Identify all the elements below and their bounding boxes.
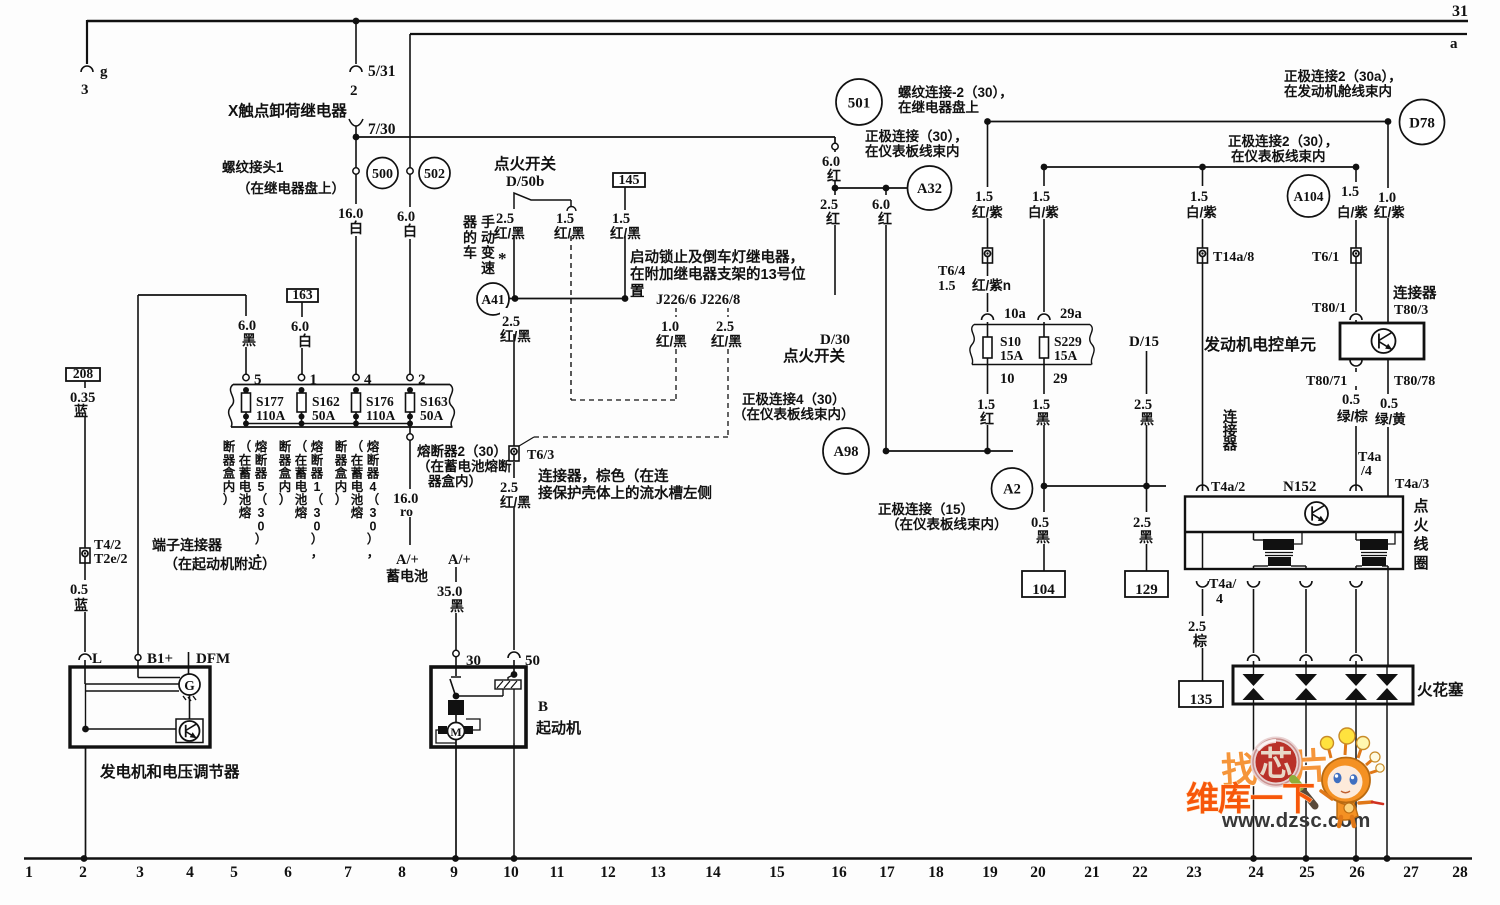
svg-text:红/黑: 红/黑 [711,333,742,349]
svg-text:4: 4 [370,480,377,494]
svg-text:正极连接（15）: 正极连接（15） [878,501,974,517]
svg-text:（在继电器盘上）: （在继电器盘上） [237,180,345,196]
svg-text:J226/8: J226/8 [700,292,740,308]
svg-text:2.5: 2.5 [502,314,520,330]
svg-text:15A: 15A [1000,348,1024,363]
svg-text:器盒内）: 器盒内） [427,473,482,489]
svg-text:（在起动机附近）: （在起动机附近） [164,556,276,572]
svg-text:（: （ [255,492,268,507]
svg-text:（: （ [367,492,380,507]
svg-text:g: g [100,64,108,80]
svg-text:红: 红 [878,211,892,227]
svg-text:（在仪表板线束内）: （在仪表板线束内） [733,406,855,422]
svg-text:T80/3: T80/3 [1394,303,1428,318]
svg-text:50A: 50A [420,408,444,423]
svg-text:8: 8 [398,864,406,881]
svg-text:T6/4: T6/4 [938,264,965,279]
svg-text:T4a: T4a [1358,450,1381,465]
svg-text:T6/1: T6/1 [1312,250,1339,265]
svg-text:5: 5 [258,480,265,494]
svg-text:（在仪表板线束内）: （在仪表板线束内） [886,516,1008,532]
svg-text:110A: 110A [366,408,396,423]
svg-text:1.5: 1.5 [612,211,630,227]
svg-text:熔: 熔 [351,505,364,520]
svg-text:5: 5 [230,864,238,881]
svg-text:在: 在 [351,452,364,467]
svg-text:速: 速 [481,260,495,276]
svg-text:0: 0 [258,519,265,533]
svg-text:26: 26 [1349,864,1365,881]
svg-text:12: 12 [600,864,616,881]
svg-text:208: 208 [73,366,94,381]
svg-text:0: 0 [370,519,377,533]
svg-text:器: 器 [1222,437,1238,454]
svg-text:黑: 黑 [450,598,464,614]
svg-text:断: 断 [223,439,236,454]
svg-text:145: 145 [619,173,640,188]
svg-text:4: 4 [1216,592,1223,607]
svg-text:T80/1: T80/1 [1312,301,1346,316]
svg-text:正极连接2（30a），: 正极连接2（30a）， [1284,68,1402,84]
svg-text:电: 电 [295,479,308,494]
svg-text:19: 19 [982,864,998,881]
svg-text:）: ） [335,492,348,507]
svg-text:熔: 熔 [295,505,308,520]
svg-text:）: ） [311,532,324,547]
svg-text:）: ） [223,492,236,507]
svg-text:（: （ [239,439,252,454]
svg-text:7/30: 7/30 [368,121,396,138]
svg-text:蓝: 蓝 [74,403,88,419]
svg-text:163: 163 [292,287,313,302]
svg-text:24: 24 [1248,864,1264,881]
svg-text:3: 3 [81,82,89,98]
svg-text:104: 104 [1032,582,1055,598]
svg-text:）: ） [367,532,380,547]
svg-text:器: 器 [310,467,324,481]
svg-text:发动机电控单元: 发动机电控单元 [1203,335,1316,354]
svg-text:断: 断 [279,439,292,454]
svg-text:熔断器2（30）: 熔断器2（30） [417,443,507,459]
svg-text:在仪表板线束内: 在仪表板线束内 [1231,148,1326,164]
svg-text:蓄: 蓄 [239,466,252,481]
svg-text:G: G [184,678,195,693]
svg-text:25: 25 [1299,864,1315,881]
svg-text:5: 5 [254,372,262,388]
svg-text:黑: 黑 [1139,529,1153,545]
svg-text:0.5: 0.5 [70,582,88,598]
svg-text:1.0: 1.0 [1378,190,1396,206]
svg-text:白: 白 [403,223,417,239]
svg-text:蓄: 蓄 [351,466,364,481]
svg-text:T14a/8: T14a/8 [1213,250,1254,265]
svg-text:1.5: 1.5 [1190,189,1208,205]
svg-text:盒: 盒 [334,466,348,481]
svg-text:连接器: 连接器 [1393,284,1437,302]
svg-text:DFM: DFM [196,651,230,667]
svg-text:2.5: 2.5 [496,211,514,227]
svg-text:28: 28 [1452,864,1468,881]
svg-text:红/紫: 红/紫 [1374,204,1405,220]
svg-text:白/紫: 白/紫 [1337,204,1368,220]
svg-text:动: 动 [481,229,495,245]
svg-text:1: 1 [310,372,318,388]
svg-text:红/紫n: 红/紫n [972,277,1011,293]
svg-text:红/黑: 红/黑 [500,328,531,344]
svg-text:（: （ [351,439,364,454]
svg-text:白: 白 [349,220,363,236]
svg-text:起动机: 起动机 [535,719,581,737]
svg-text:正极连接（30），: 正极连接（30）， [865,128,968,144]
svg-text:S163: S163 [420,394,448,409]
svg-text:（在蓄电池熔断: （在蓄电池熔断 [417,458,512,474]
svg-text:器: 器 [254,467,268,481]
svg-text:绿/黄: 绿/黄 [1375,411,1406,427]
svg-text:20: 20 [1030,864,1046,881]
svg-text:火花塞: 火花塞 [1417,680,1464,699]
svg-text:110A: 110A [256,408,286,423]
svg-text:启动锁止及倒车灯继电器，: 启动锁止及倒车灯继电器， [630,248,804,266]
svg-text:50A: 50A [312,408,336,423]
svg-text:2: 2 [79,864,87,881]
svg-text:在: 在 [239,452,252,467]
svg-text:点火开关: 点火开关 [494,154,557,173]
svg-text:池: 池 [239,492,252,507]
svg-text:线: 线 [1413,535,1428,553]
svg-text:0.5: 0.5 [1380,396,1398,412]
svg-text:3: 3 [370,506,377,520]
svg-text:2: 2 [418,372,426,388]
svg-text:断: 断 [311,452,324,467]
svg-text:白: 白 [298,333,312,349]
svg-text:A2: A2 [1003,482,1021,498]
svg-text:T4a/3: T4a/3 [1395,477,1429,492]
svg-text:熔: 熔 [239,505,252,520]
svg-text:器: 器 [462,214,478,230]
svg-text:发电机和电压调节器: 发电机和电压调节器 [99,762,240,781]
svg-text:L: L [92,651,102,667]
svg-text:正极连接4（30）: 正极连接4（30） [742,391,846,407]
svg-text:4: 4 [186,864,194,881]
svg-text:a: a [1450,36,1458,52]
svg-text:A41: A41 [481,292,504,307]
svg-text:22: 22 [1132,864,1148,881]
svg-text:A98: A98 [834,444,859,460]
svg-text:S162: S162 [312,394,340,409]
svg-text:断: 断 [335,439,348,454]
svg-text:内: 内 [335,479,348,494]
svg-text:6: 6 [284,864,292,881]
svg-text:的: 的 [463,229,477,245]
svg-text:红/黑: 红/黑 [656,333,687,349]
svg-text:X触点卸荷继电器: X触点卸荷继电器 [228,101,347,120]
svg-text:蓄电池: 蓄电池 [386,568,428,584]
svg-text:（: （ [311,492,324,507]
svg-text:2.5: 2.5 [716,319,734,335]
svg-text:点: 点 [1413,498,1428,515]
svg-text:器: 器 [278,453,292,467]
svg-text:T2e/2: T2e/2 [94,552,127,567]
svg-text:S229: S229 [1054,334,1082,349]
svg-text:29a: 29a [1060,306,1083,322]
svg-text:11: 11 [550,864,565,881]
svg-text:5/31: 5/31 [368,63,396,80]
svg-text:接保护壳体上的流水槽左侧: 接保护壳体上的流水槽左侧 [538,484,712,502]
svg-text:T4a/: T4a/ [1209,577,1237,592]
svg-text:池: 池 [295,492,308,507]
svg-text:135: 135 [1190,692,1213,708]
svg-text:9: 9 [450,864,458,881]
svg-text:黑: 黑 [1036,529,1050,545]
svg-text:*: * [498,249,507,268]
svg-text:盒: 盒 [278,466,292,481]
svg-text:器: 器 [366,467,380,481]
svg-text:棕: 棕 [1192,633,1207,649]
svg-text:置: 置 [630,283,645,300]
svg-text:502: 502 [424,167,445,182]
svg-text:黑: 黑 [1140,411,1154,427]
svg-text:白/紫: 白/紫 [1028,204,1059,220]
svg-text:）: ） [255,532,268,547]
svg-text:15A: 15A [1054,348,1078,363]
svg-text:红/黑: 红/黑 [554,225,585,241]
svg-text:绿/棕: 绿/棕 [1337,408,1368,424]
svg-text:T6/3: T6/3 [527,448,554,463]
svg-text:点火开关: 点火开关 [783,346,846,365]
svg-text:27: 27 [1403,864,1419,881]
svg-text:，: ， [367,546,380,560]
svg-text:手: 手 [481,214,495,230]
svg-text:断: 断 [255,452,268,467]
svg-text:1.5: 1.5 [975,189,993,205]
svg-text:D/15: D/15 [1129,334,1159,350]
svg-text:10a: 10a [1004,306,1027,322]
svg-text:S176: S176 [366,394,394,409]
svg-text:黑: 黑 [242,332,256,348]
svg-text:电: 电 [239,479,252,494]
svg-text:A/+: A/+ [448,552,471,568]
svg-text:1.0: 1.0 [661,319,679,335]
svg-text:14: 14 [705,864,721,881]
svg-text:火: 火 [1413,517,1429,534]
svg-text:在仪表板线束内: 在仪表板线束内 [865,143,960,159]
svg-text:在: 在 [295,452,308,467]
svg-text:3: 3 [258,506,265,520]
svg-text:在附加继电器支架的13号位: 在附加继电器支架的13号位 [630,265,806,283]
svg-text:N152: N152 [1283,479,1316,495]
svg-text:500: 500 [372,167,393,182]
svg-text:10: 10 [503,864,519,881]
svg-text:T4/2: T4/2 [94,538,121,553]
svg-text:A/+: A/+ [396,552,419,568]
svg-text:断: 断 [367,452,380,467]
svg-text:变: 变 [481,245,495,261]
svg-text:红/黑: 红/黑 [494,225,525,241]
svg-text:熔: 熔 [255,439,268,454]
svg-text:车: 车 [463,245,477,261]
svg-text:（: （ [295,439,308,454]
svg-text:B: B [538,699,548,715]
svg-text:17: 17 [879,864,895,881]
svg-text:T80/71: T80/71 [1306,374,1347,389]
svg-text:13: 13 [650,864,666,881]
svg-text:10: 10 [1000,371,1015,387]
svg-text:红: 红 [827,168,841,184]
svg-text:3: 3 [136,864,144,881]
svg-text:T4a/2: T4a/2 [1211,480,1245,495]
svg-text:4: 4 [364,372,372,388]
svg-text:螺纹接头1: 螺纹接头1 [222,159,284,175]
svg-text:1: 1 [25,864,33,881]
svg-text:1.5: 1.5 [938,279,956,294]
svg-text:16: 16 [831,864,847,881]
svg-text:7: 7 [344,864,352,881]
svg-text:15: 15 [769,864,785,881]
svg-text:S10: S10 [1000,334,1021,349]
svg-text:29: 29 [1053,371,1068,387]
svg-text:芯: 芯 [1260,745,1293,782]
svg-text:J226/6: J226/6 [656,292,696,308]
svg-text:D/30: D/30 [820,332,850,348]
svg-text:端子连接器: 端子连接器 [152,537,223,553]
svg-text:B1+: B1+ [147,651,173,667]
svg-text:在继电器盘上: 在继电器盘上 [898,99,979,115]
svg-text:A32: A32 [917,181,942,197]
svg-text:圈: 圈 [1413,555,1428,572]
svg-text:18: 18 [928,864,944,881]
svg-text:1.5: 1.5 [1341,184,1359,200]
svg-text:连接器，棕色（在连: 连接器，棕色（在连 [538,467,669,485]
svg-text:0: 0 [314,519,321,533]
svg-text:A104: A104 [1294,189,1324,204]
svg-text:蓝: 蓝 [74,597,88,613]
svg-text:129: 129 [1135,582,1158,598]
svg-text:蓄: 蓄 [295,466,308,481]
svg-text:红/黑: 红/黑 [500,494,531,510]
svg-text:501: 501 [848,95,871,111]
svg-text:ro: ro [400,505,413,520]
svg-text:白/紫: 白/紫 [1186,204,1217,220]
svg-text:正极连接2（30），: 正极连接2（30）， [1228,133,1338,149]
svg-text:电: 电 [351,479,364,494]
svg-text:31: 31 [1452,3,1468,20]
svg-text:）: ） [279,492,292,507]
svg-text:1: 1 [314,480,321,494]
svg-text:红: 红 [826,211,840,227]
svg-text:T80/78: T80/78 [1394,374,1435,389]
svg-text:红/紫: 红/紫 [972,204,1003,220]
svg-text:在发动机舱线束内: 在发动机舱线束内 [1284,83,1392,99]
svg-text:D/50b: D/50b [506,174,544,190]
svg-text:1.5: 1.5 [1032,189,1050,205]
svg-text:M: M [450,725,461,739]
svg-text:器: 器 [334,453,348,467]
svg-text:3: 3 [314,506,321,520]
svg-text:盒: 盒 [222,466,236,481]
svg-text:红: 红 [980,411,994,427]
svg-text:池: 池 [351,492,364,507]
svg-text:熔: 熔 [311,439,324,454]
svg-text:S177: S177 [256,394,284,409]
svg-text:2: 2 [350,83,358,99]
svg-text:螺纹连接-2（30），: 螺纹连接-2（30）， [898,84,1013,100]
svg-text:内: 内 [223,479,236,494]
svg-text:熔: 熔 [367,439,380,454]
svg-text:/4: /4 [1360,464,1372,479]
svg-text:0.5: 0.5 [1342,392,1360,408]
svg-text:1.5: 1.5 [556,211,574,227]
svg-text:器: 器 [222,453,236,467]
svg-text:2.5: 2.5 [500,480,518,496]
svg-text:，: ， [311,546,324,560]
svg-text:内: 内 [279,479,292,494]
svg-text:D78: D78 [1409,115,1435,131]
svg-text:23: 23 [1186,864,1202,881]
svg-text:黑: 黑 [1036,411,1050,427]
svg-text:21: 21 [1084,864,1100,881]
